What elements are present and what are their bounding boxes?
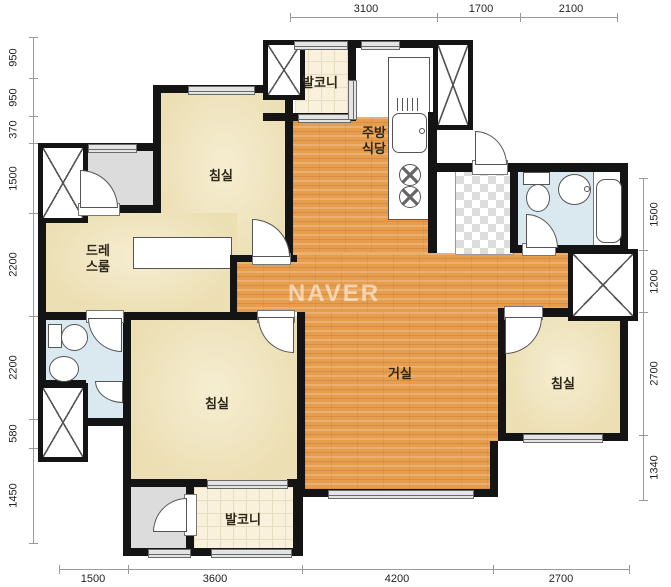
wall [117,205,161,213]
dimension-tick [29,78,38,79]
entrance-hall-strip [437,167,455,253]
dimension-tick [302,565,303,574]
faucet-dot [584,186,590,192]
dimension-tick [29,419,38,420]
dimension-line [59,569,630,570]
dim-label-bottom: 2700 [533,573,589,586]
dimension-tick [59,565,60,574]
naver-watermark: NAVER [288,280,380,308]
shaft-box [568,249,638,321]
dim-label-left: 580 [8,417,21,451]
stove-burner [399,164,421,186]
dim-label-right: 1340 [649,451,662,485]
wall [287,479,301,487]
wall [505,163,628,172]
wardrobe [133,237,232,269]
door-swing [475,131,507,165]
dressroom-label-line1: 드레 [86,243,110,259]
dimension-tick [29,316,38,317]
window [188,86,255,95]
vent-lines [397,98,398,111]
window [211,549,292,558]
stove-burner [399,186,421,208]
faucet-dot [419,128,425,134]
living-room-floor [305,312,498,497]
wall [153,85,161,213]
dressroom-label-line2: 스룸 [86,259,110,275]
sink-basin [49,356,79,382]
wall [131,312,258,320]
floorplan-canvas: 침실 침실 침실 거실 주방 식당 드레 스룸 발코니 발코니 NAVER 31… [0,0,671,587]
vent-lines [412,98,413,111]
window [88,144,137,153]
dim-label-left: 1500 [8,162,21,196]
wall [293,487,303,556]
dimension-tick [29,116,38,117]
dimension-line [290,17,618,18]
wall [123,479,207,487]
dimension-tick [617,13,618,22]
window [298,114,351,123]
vent-lines [407,98,408,111]
room-label-bedroom-right: 침실 [551,376,575,392]
toilet-bowl [61,324,88,351]
entrance-floor [455,167,514,255]
room-label-balcony-top: 발코니 [302,75,338,91]
room-label-balcony-bottom: 발코니 [225,512,261,528]
dimension-line [643,178,644,500]
kitchen-label-line1: 주방 [362,125,386,141]
dim-label-right: 1200 [649,265,662,299]
window [523,434,603,443]
room-label-bedroom-bottom-left: 침실 [205,396,229,412]
window [294,41,348,50]
dimension-tick [639,250,648,251]
dimension-tick [290,13,291,22]
vent-lines [402,98,403,111]
dim-label-top: 3100 [338,3,394,16]
wall [510,167,518,253]
dim-label-left: 950 [8,41,21,75]
dimension-tick [437,13,438,22]
room-label-kitchen: 주방 식당 [362,125,386,157]
wall [490,441,498,497]
dim-label-top: 1700 [453,3,509,16]
dimension-tick [639,435,648,436]
dimension-tick [29,37,38,38]
dim-label-left: 2200 [8,248,21,282]
dim-label-left: 1450 [8,479,21,513]
dim-label-right: 2700 [649,357,662,391]
wall [432,163,473,172]
wall [123,312,131,556]
kitchen-label-line2: 식당 [362,141,386,157]
wall [46,312,88,320]
window [361,41,400,50]
dimension-tick [29,213,38,214]
dimension-tick [29,143,38,144]
dimension-tick [520,13,521,22]
dim-label-left: 950 [8,81,21,115]
dim-label-top: 2100 [543,3,599,16]
window [148,549,191,558]
wall [230,255,237,312]
toilet-bowl [526,184,550,212]
dimension-tick [639,500,648,501]
dim-label-right: 1500 [649,198,662,232]
bathtub [596,179,622,243]
dimension-tick [639,312,648,313]
window [207,480,288,489]
dimension-tick [29,448,38,449]
wall [297,312,305,497]
dim-label-left: 370 [8,113,21,147]
shaft-box [433,40,473,130]
dimension-tick [639,178,648,179]
dim-label-left: 2200 [8,351,21,385]
window [328,490,474,499]
room-label-bedroom-top-left: 침실 [209,168,233,184]
wall [428,123,437,253]
dimension-tick [493,565,494,574]
dim-label-bottom: 4200 [369,573,425,586]
vent-lines [417,98,418,111]
window [348,80,357,120]
dimension-tick [29,543,38,544]
toilet-tank [48,324,62,348]
room-label-living-room: 거실 [388,366,412,382]
dimension-tick [629,565,630,574]
dimension-tick [128,565,129,574]
dim-label-bottom: 1500 [65,573,121,586]
dimension-line [33,37,34,543]
room-label-dressroom: 드레 스룸 [86,243,110,275]
dim-label-bottom: 3600 [187,573,243,586]
shaft-box [38,383,88,462]
